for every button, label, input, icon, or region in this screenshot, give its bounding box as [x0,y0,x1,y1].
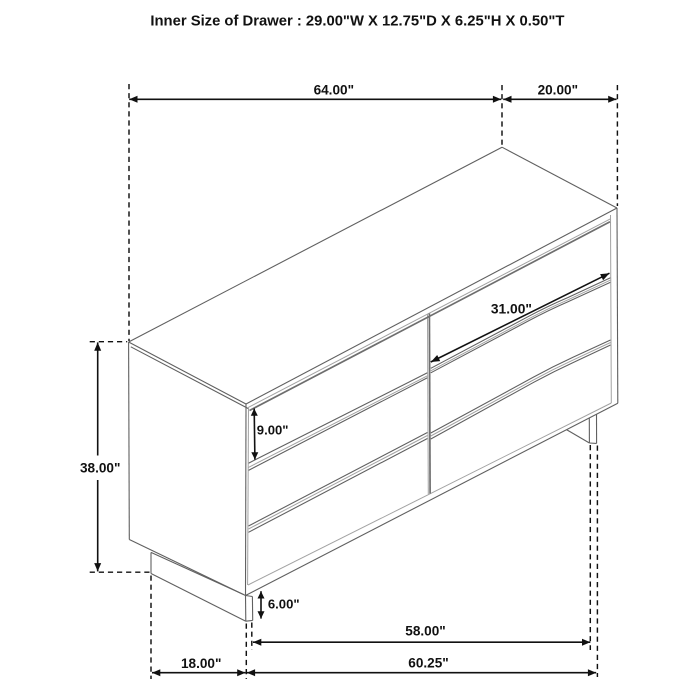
svg-text:60.25": 60.25" [408,655,448,670]
svg-text:18.00": 18.00" [181,656,221,671]
svg-text:64.00": 64.00" [314,83,354,98]
svg-text:Inner Size of Drawer : 29.00"W: Inner Size of Drawer : 29.00"W X 12.75"D… [150,14,564,30]
svg-text:20.00": 20.00" [538,83,578,98]
svg-text:58.00": 58.00" [405,624,445,639]
svg-text:9.00": 9.00" [257,423,289,438]
svg-text:31.00": 31.00" [491,301,532,316]
svg-text:6.00": 6.00" [268,597,300,612]
svg-text:38.00": 38.00" [80,460,120,475]
